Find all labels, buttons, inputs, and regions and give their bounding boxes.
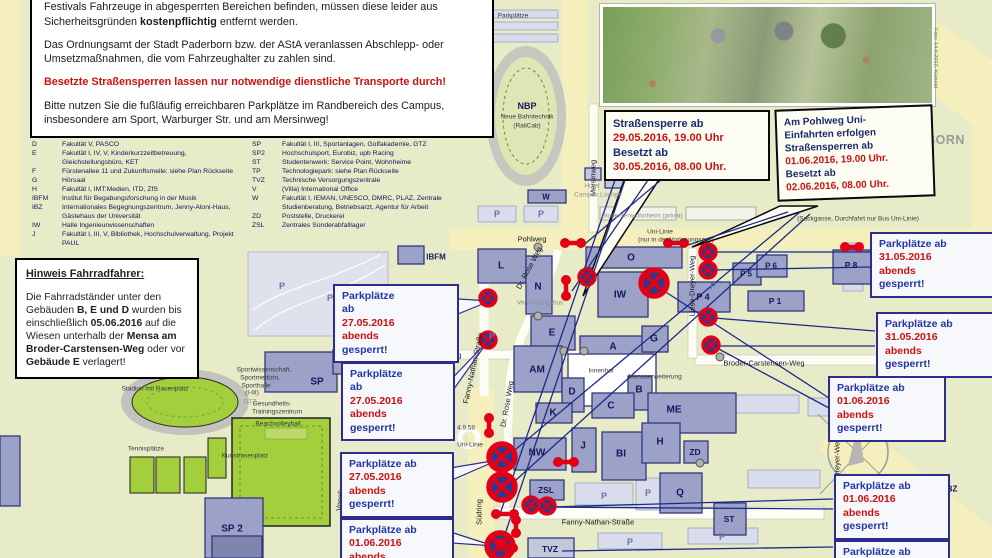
map-label: TVZ	[542, 544, 558, 554]
legend-text: Fakultät I, IEMAN, UNESCO, DMRC, PLAZ, Z…	[282, 195, 478, 213]
callout-date-line: abends	[843, 507, 941, 520]
map-label: BI	[616, 449, 626, 460]
parking-closed-callout: Parkplätze ab01.06.2016abendsgesperrt!	[834, 474, 950, 540]
bike-notice-body: Die Fahrradständer unter den Gebäuden B,…	[26, 291, 188, 369]
map-label: Innenhof	[588, 368, 613, 375]
callout-date-line: abends	[350, 408, 446, 421]
parking-closed-callout: Parkplätze ab27.05.2016abendsgesperrt!	[340, 452, 454, 518]
map-label: ZD	[689, 447, 700, 457]
map-label: ST	[724, 514, 735, 524]
legend-code: D	[32, 141, 62, 150]
callout-text-line: Parkplätze ab	[349, 524, 445, 537]
legend-code: ZD	[252, 213, 282, 222]
legend-code: ZSL	[252, 222, 282, 231]
map-label: Uni-Linie	[647, 229, 673, 236]
parking-p-label: P	[279, 281, 285, 291]
callout-date-line: 31.05.2016	[879, 251, 985, 264]
parking-closed-callout: Parkplätze ab01.06.2016abendsgesperrt!	[828, 376, 946, 442]
map-label: Sportmedizin,	[240, 375, 280, 382]
legend-code: G	[32, 177, 62, 186]
legend-row: SPFakultät I, III, Sportanlagen, Golfaka…	[252, 141, 478, 150]
callout-date-line: 31.05.2016	[885, 331, 985, 344]
callout-date-line: 27.05.2016	[342, 317, 450, 330]
map-label: Q	[676, 488, 684, 499]
legend-row: GHörsaal	[32, 177, 248, 186]
parking-p-label: P	[627, 537, 633, 547]
parking-closed-callout: Parkplätzeab27.05.2016abendsgesperrt!	[333, 284, 459, 363]
callout-text-line: Parkplätze ab	[879, 238, 985, 251]
legend-code: V	[252, 186, 282, 195]
map-label: Stadion mit Rasenplatz	[122, 386, 189, 393]
map-label: P 1	[769, 296, 782, 306]
map-label: Campus Lounge	[574, 192, 622, 199]
map-label: A	[609, 342, 616, 353]
map-label: Broder-Carstensen-Weg	[723, 359, 804, 368]
legend-text: Internationales Begegnungszentrum, Jenny…	[62, 204, 248, 222]
legend-row: IBZInternationales Begegnungszentrum, Je…	[32, 204, 248, 222]
legend-row: IWHalle Ingenieurwissenschaften	[32, 222, 248, 231]
map-label: Fanny-Nathan-Straße	[562, 518, 635, 527]
map-label: Pohlweg	[518, 235, 547, 244]
callout-date-line: abends	[349, 485, 445, 498]
legend-code: IBFM	[32, 195, 62, 204]
text-fragment: B, E und D	[77, 305, 129, 316]
parking-closed-callout: Parkplätze ab31.05.2016abendsgesperrt!	[870, 232, 992, 298]
callout-text-line: Besetzt ab	[613, 146, 761, 160]
roadblock-icon	[511, 515, 521, 538]
legend-row: FFürstenallee 11 und Zukunftsmeile: sieh…	[32, 168, 248, 177]
map-label: P 5	[740, 270, 752, 279]
map-label: Sportwissenschaft,	[237, 367, 292, 374]
legend-row: JFakultät I, III, V, Bibliothek, Hochsch…	[32, 231, 248, 249]
campus-map-page: N Foto: 14.6.2013, Kiebold UNIVERSITÄT P…	[0, 0, 992, 558]
callout-date-line: 29.05.2016, 19.00 Uhr	[613, 131, 761, 145]
callout-date-line: 01.06.2016	[349, 537, 445, 550]
parking-closed-callout: Parkplätzeab27.05.2016abendsgesperrt!	[341, 362, 455, 441]
no-stopping-icon	[700, 244, 716, 260]
roadblock-callout: Straßensperre ab29.05.2016, 19.00 UhrBes…	[604, 110, 770, 181]
callout-date-line: abends	[349, 551, 445, 558]
legend-text: Fakultät V, PASCO	[62, 141, 248, 150]
callout-text-line: Parkplätze ab	[843, 480, 941, 493]
callout-text-line: gesperrt!	[885, 358, 985, 371]
legend-text: (Villa) International Office	[282, 186, 478, 195]
legend-text: Halle Ingenieurwissenschaften	[62, 222, 248, 231]
legend-text: Institut für Begabungsforschung in der M…	[62, 195, 248, 204]
notice-paragraph: Das Ordnungsamt der Stadt Paderborn bzw.…	[44, 38, 480, 67]
legend-row: ZSLZentrales Sonderabfalllager	[252, 222, 478, 231]
map-label: IBFM	[426, 253, 446, 262]
callout-text-line: gesperrt!	[350, 422, 446, 435]
callout-date-line: 27.05.2016	[350, 395, 446, 408]
text-fragment: 05.06.2016	[91, 318, 143, 329]
text-fragment: oder vor	[144, 344, 185, 355]
legend-row: ZDPoststelle, Druckerei	[252, 213, 478, 222]
callout-date-line: abends	[879, 265, 985, 278]
map-label: AM	[529, 365, 545, 376]
map-label: NW	[529, 448, 546, 459]
legend-code: TP	[252, 168, 282, 177]
callout-text-line: Parkplätze ab	[349, 458, 445, 471]
map-label: P 6	[765, 262, 777, 271]
callout-text-line: gesperrt!	[342, 344, 450, 357]
map-label: Sporthalle	[241, 383, 270, 390]
festival-notice-box: Verbotszeichen abgesperrt. Sollten sich …	[30, 0, 494, 138]
legend-code: E	[32, 150, 62, 168]
legend-code: IBZ	[32, 204, 62, 222]
legend-text: Fakultät I, III, V, Bibliothek, Hochschu…	[62, 231, 248, 249]
legend-text: Studentenwerk: Service Point, Wohnheime	[282, 159, 478, 168]
map-label: Uni-Linie	[457, 442, 483, 449]
map-label: Beachvolleyball	[255, 421, 300, 428]
legend-code: W	[252, 195, 282, 213]
callout-date-line: 27.05.2016	[349, 471, 445, 484]
callout-text-line: Parkplätze ab	[885, 318, 985, 331]
map-label: (RailCab)	[513, 123, 540, 130]
callout-text-line: Parkplätze	[350, 368, 446, 381]
map-label: L	[498, 261, 504, 272]
map-label: 4.9.58	[457, 425, 475, 432]
callout-date-line: 01.06.2016	[837, 395, 937, 408]
photo-caption: Foto: 14.6.2013, Kiebold	[932, 28, 938, 88]
callout-text-line: Straßensperre ab	[613, 117, 761, 131]
callout-date-line: abends	[837, 409, 937, 422]
map-label: Parkplätze	[498, 13, 529, 20]
map-label: (nur in der Vorlesungszeit)	[638, 237, 714, 244]
legend-text: Hochschulsport, Eurobiz, upb Racing	[282, 150, 478, 159]
legend-row: TVZTechnische Versorgungszentrale	[252, 177, 478, 186]
text-fragment: entfernt werden.	[217, 16, 298, 28]
legend-code: TVZ	[252, 177, 282, 186]
no-stopping-icon	[480, 290, 496, 306]
callout-text-line: gesperrt!	[879, 278, 985, 291]
map-label: Studentenwohnheim (privat)	[601, 213, 682, 220]
callout-date-line: 30.05.2016, 08.00 Uhr.	[613, 160, 761, 174]
text-fragment: verlagert!	[80, 357, 126, 368]
legend-text: Fakultät I, III, Sportanlagen, Golfakade…	[282, 141, 478, 150]
legend-row: IBFMInstitut für Begabungsforschung in d…	[32, 195, 248, 204]
map-label: Hotel	[584, 183, 599, 190]
legend-code: SP2	[252, 150, 282, 159]
callout-text-line: Parkplätze ab	[837, 382, 937, 395]
legend-code: ST	[252, 159, 282, 168]
bike-rack-notice-box: Hinweis Fahrradfahrer: Die Fahrradstände…	[15, 258, 199, 379]
legend-text: Poststelle, Druckerei	[282, 213, 478, 222]
legend-row: TPTechnologiepark: siehe Plan Rückseite	[252, 168, 478, 177]
map-label: N	[534, 282, 541, 293]
no-stopping-icon	[539, 498, 555, 514]
legend-text: Technologiepark: siehe Plan Rückseite	[282, 168, 478, 177]
callout-text-line: Parkplätze	[342, 290, 450, 303]
map-label: K	[549, 408, 556, 419]
legend-text: Fürstenallee 11 und Zukunftsmeile: siehe…	[62, 168, 248, 177]
legend-row: HFakultät I, IMT:Medien, ITD, ZfS	[32, 186, 248, 195]
legend-row: EFakultät I, IV, V, Kinderkurzzeitbetreu…	[32, 150, 248, 168]
notice-paragraph-warning: Besetzte Straßensperren lassen nur notwe…	[44, 75, 480, 89]
map-label: (Sackgasse, Durchfahrt nur Bus Uni-Linie…	[797, 216, 919, 223]
callout-text-line: ab	[350, 381, 446, 394]
legend-text: Zentrales Sonderabfalllager	[282, 222, 478, 231]
callout-text-line: gesperrt!	[843, 520, 941, 533]
map-label: Tennisplätze	[128, 446, 164, 453]
callout-date-line: abends	[885, 345, 985, 358]
no-stopping-icon	[703, 337, 719, 353]
parking-p-label: P	[538, 209, 544, 219]
bike-notice-title: Hinweis Fahrradfahrer:	[26, 268, 188, 282]
map-label: ZSL	[538, 485, 554, 495]
legend-text: Hörsaal	[62, 177, 248, 186]
map-label: E	[549, 328, 556, 339]
map-label: NBP	[517, 101, 536, 111]
map-label: Gesundheits-	[253, 401, 292, 408]
map-label: G	[650, 334, 658, 345]
map-label: Neue Bahntechnik	[500, 114, 553, 121]
legend-row: V(Villa) International Office	[252, 186, 478, 195]
legend-code: F	[32, 168, 62, 177]
legend-row: SP2Hochschulsport, Eurobiz, upb Racing	[252, 150, 478, 159]
text-fragment: Gebäude E	[26, 357, 80, 368]
no-stopping-icon	[489, 444, 515, 470]
callout-date-line: abends	[342, 330, 450, 343]
parking-p-label: P	[645, 488, 651, 498]
parking-p-label: P	[710, 281, 716, 291]
no-stopping-icon	[523, 497, 539, 513]
parking-closed-callout: Parkplätze ab01.06.2016abends	[340, 518, 454, 558]
parking-p-label: P	[601, 491, 607, 501]
legend-code: IW	[32, 222, 62, 231]
callout-text-line: ab	[342, 303, 450, 316]
parking-closed-callout: Parkplätze ab31.05.2016	[834, 540, 950, 558]
map-label: Trainingszentrum	[252, 409, 302, 416]
no-stopping-icon	[579, 269, 595, 285]
map-label: Verbindungsbus	[517, 300, 564, 307]
legend-row: WFakultät I, IEMAN, UNESCO, DMRC, PLAZ, …	[252, 195, 478, 213]
notice-paragraph: Verbotszeichen abgesperrt. Sollten sich …	[44, 0, 480, 29]
map-label: ME	[667, 405, 682, 416]
parking-closed-callout: Parkplätze ab31.05.2016abendsgesperrt!	[876, 312, 992, 378]
callout-text-line: gesperrt!	[837, 422, 937, 435]
text-fragment: kostenpflichtig	[140, 16, 217, 28]
map-label: J	[580, 441, 586, 452]
map-label: Mensaerweiterung	[628, 374, 681, 381]
legend-code: SP	[252, 141, 282, 150]
roadblock-callout: Am Pohlweg Uni-Einfahrten erfolgenStraße…	[774, 104, 935, 201]
no-stopping-icon	[641, 270, 667, 296]
legend-text: Technische Versorgungszentrale	[282, 177, 478, 186]
legend-text: Fakultät I, IMT:Medien, ITD, ZfS	[62, 186, 248, 195]
parking-p-label: P	[489, 331, 495, 341]
map-label: O	[627, 253, 635, 264]
legend-row: DFakultät V, PASCO	[32, 141, 248, 150]
callout-text-line: Parkplätze ab	[843, 546, 941, 558]
map-label: W	[542, 193, 550, 202]
map-label: H	[656, 437, 663, 448]
parking-p-label: P	[719, 532, 725, 542]
map-label: P 4	[696, 292, 709, 302]
map-label: SP 2	[221, 524, 243, 535]
parking-p-label: P	[494, 209, 500, 219]
no-stopping-icon	[700, 309, 716, 325]
map-label: Liese-Dreyer-Weg	[688, 256, 697, 317]
notice-paragraph: Bitte nutzen Sie die fußläufig erreichba…	[44, 99, 480, 128]
map-label: D	[568, 387, 575, 398]
map-label: P 8	[845, 260, 858, 270]
callout-date-line: 01.06.2016	[843, 493, 941, 506]
legend-row: STStudentenwerk: Service Point, Wohnheim…	[252, 159, 478, 168]
map-label: IW	[614, 290, 626, 301]
map-label: Südring	[475, 499, 484, 525]
map-label: Kunstrasenplatz	[222, 453, 269, 460]
legend-column-2: SPFakultät I, III, Sportanlagen, Golfaka…	[252, 141, 478, 231]
aerial-photo	[600, 4, 935, 106]
roadblock-icon	[561, 275, 571, 301]
legend-text: Fakultät I, IV, V, Kinderkurzzeitbetreuu…	[62, 150, 248, 168]
map-label: SP	[310, 377, 323, 388]
map-label: B	[635, 385, 642, 396]
legend-code: H	[32, 186, 62, 195]
callout-text-line: gesperrt!	[349, 498, 445, 511]
map-label: (I-III)	[245, 390, 259, 397]
no-stopping-icon	[489, 474, 515, 500]
legend-code: J	[32, 231, 62, 249]
map-label: C	[607, 401, 614, 412]
legend-column-1: DFakultät V, PASCOEFakultät I, IV, V, Ki…	[32, 141, 248, 249]
no-stopping-icon	[700, 262, 716, 278]
